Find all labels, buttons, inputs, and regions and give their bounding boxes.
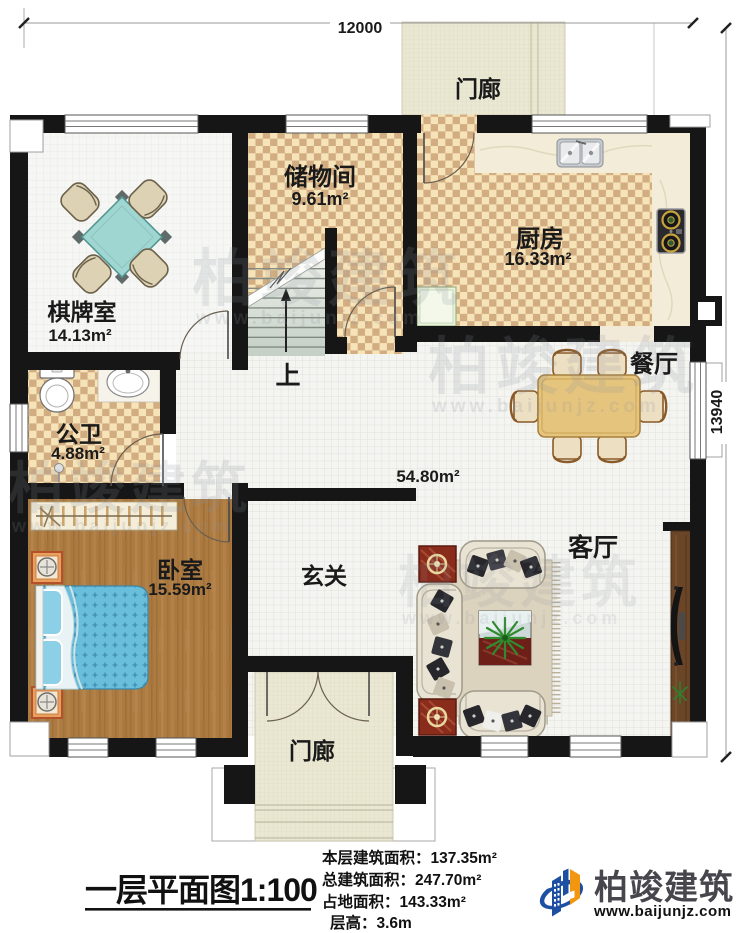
svg-text:门廊: 门廊 [455,76,501,102]
svg-text:上: 上 [275,362,300,390]
svg-text:占地面积：143.33m²: 占地面积：143.33m² [322,892,466,911]
svg-text:柏竣建筑: 柏竣建筑 [594,868,734,907]
svg-text:9.61m²: 9.61m² [291,189,348,209]
svg-text:12000: 12000 [338,20,383,37]
svg-text:总建筑面积：247.70m²: 总建筑面积：247.70m² [322,870,481,889]
svg-text:餐厅: 餐厅 [630,351,678,378]
svg-text:www.baijunjz.com: www.baijunjz.com [593,903,731,920]
svg-text:柏竣建筑: 柏竣建筑 [8,457,252,520]
svg-text:门廊: 门廊 [289,738,335,764]
svg-text:13940: 13940 [709,390,726,435]
svg-text:www.baijunjz.com: www.baijunjz.com [195,308,424,329]
svg-text:15.59m²: 15.59m² [148,580,212,599]
svg-text:www.baijunjz.com: www.baijunjz.com [431,396,660,417]
svg-text:柏竣建筑: 柏竣建筑 [192,245,464,314]
svg-text:16.33m²: 16.33m² [504,249,571,269]
svg-text:本层建筑面积：137.35m²: 本层建筑面积：137.35m² [322,848,497,867]
svg-text:储物间: 储物间 [284,163,356,191]
svg-text:www.baijunjz.com: www.baijunjz.com [401,608,621,628]
svg-text:棋牌室: 棋牌室 [48,299,117,325]
svg-text:玄关: 玄关 [301,563,347,589]
svg-text:14.13m²: 14.13m² [48,326,112,345]
svg-text:层高：3.6m: 层高：3.6m [330,913,412,932]
svg-text:54.80m²: 54.80m² [396,467,460,486]
svg-text:一层平面图1:100: 一层平面图1:100 [85,872,317,908]
svg-text:客厅: 客厅 [568,533,618,562]
svg-text:www.baijunjz.com: www.baijunjz.com [11,516,231,536]
svg-text:4.88m²: 4.88m² [51,444,105,463]
